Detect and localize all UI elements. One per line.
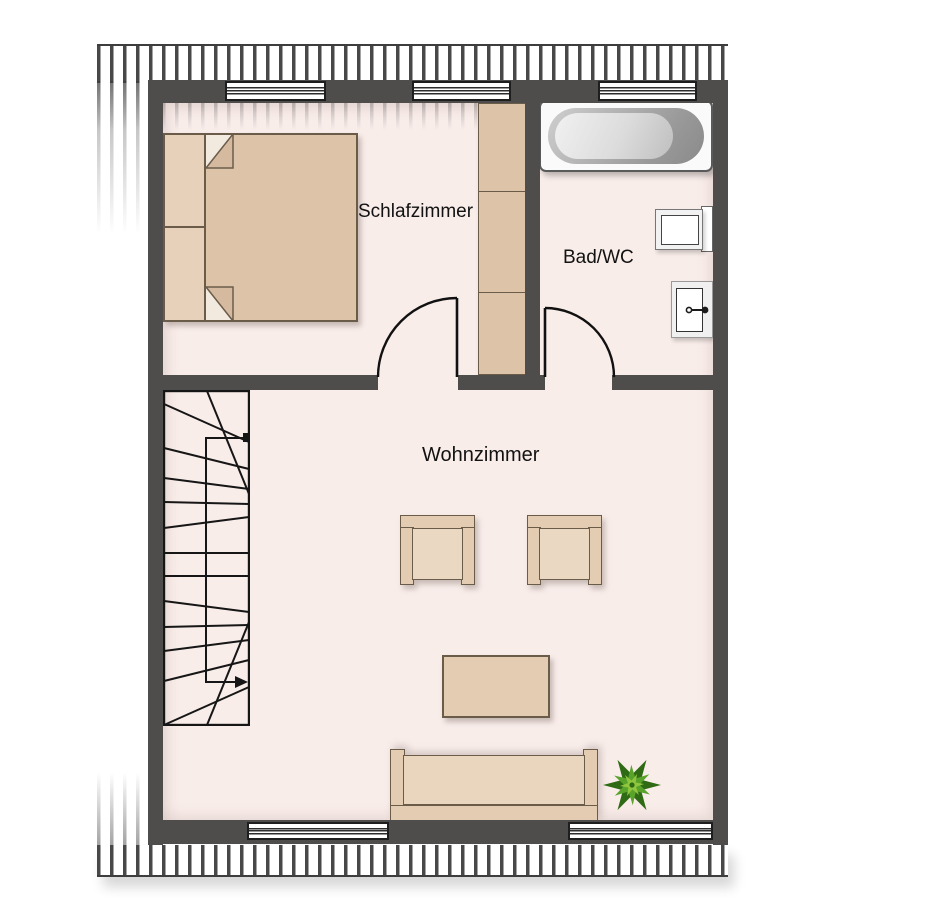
sofa-armrest-right bbox=[583, 749, 598, 810]
toilet-bowl bbox=[661, 215, 699, 245]
floorplan-canvas: Schlafzimmer Bad/WC Wohnzimmer bbox=[0, 0, 940, 898]
interior-wall-bedroom-living bbox=[163, 375, 378, 390]
interior-wall-bedroom-bath bbox=[525, 103, 540, 390]
window-top-1 bbox=[225, 81, 326, 101]
armchair-armrest-right bbox=[588, 527, 602, 585]
staircase bbox=[163, 390, 250, 726]
armchair-1 bbox=[400, 515, 475, 585]
schlafzimmer-door bbox=[376, 296, 460, 380]
roof-hatch-top bbox=[97, 44, 728, 83]
room-label-schlafzimmer: Schlafzimmer bbox=[358, 201, 473, 223]
bad-wc-door bbox=[543, 306, 616, 379]
wardrobe-divider bbox=[479, 292, 526, 293]
armchair-armrest-right bbox=[461, 527, 475, 585]
window-top-2 bbox=[412, 81, 511, 101]
wardrobe bbox=[478, 103, 527, 375]
sofa-seat bbox=[403, 755, 585, 805]
window-top-3 bbox=[598, 81, 697, 101]
double-bed bbox=[163, 133, 358, 322]
bathtub bbox=[539, 100, 713, 172]
armchair-seat bbox=[412, 528, 463, 580]
stair-walkline bbox=[206, 433, 250, 688]
roof-hatch-bottom bbox=[97, 845, 728, 877]
room-label-bad-wc: Bad/WC bbox=[563, 247, 634, 269]
wardrobe-divider bbox=[479, 191, 526, 192]
coffee-table bbox=[442, 655, 550, 718]
armchair-seat bbox=[539, 528, 590, 580]
toilet bbox=[655, 209, 703, 250]
sink bbox=[671, 281, 713, 338]
exterior-wall-left bbox=[148, 80, 163, 845]
exterior-wall-right bbox=[713, 80, 728, 845]
interior-wall-bath-living bbox=[612, 375, 713, 390]
room-label-wohnzimmer: Wohnzimmer bbox=[422, 444, 539, 467]
bathtub-water bbox=[555, 113, 673, 159]
window-bottom-2 bbox=[568, 822, 713, 840]
armchair-2 bbox=[527, 515, 602, 585]
faucet-icon bbox=[684, 303, 712, 317]
sofa bbox=[390, 748, 598, 822]
plant bbox=[603, 756, 661, 814]
window-bottom-1 bbox=[247, 822, 389, 840]
